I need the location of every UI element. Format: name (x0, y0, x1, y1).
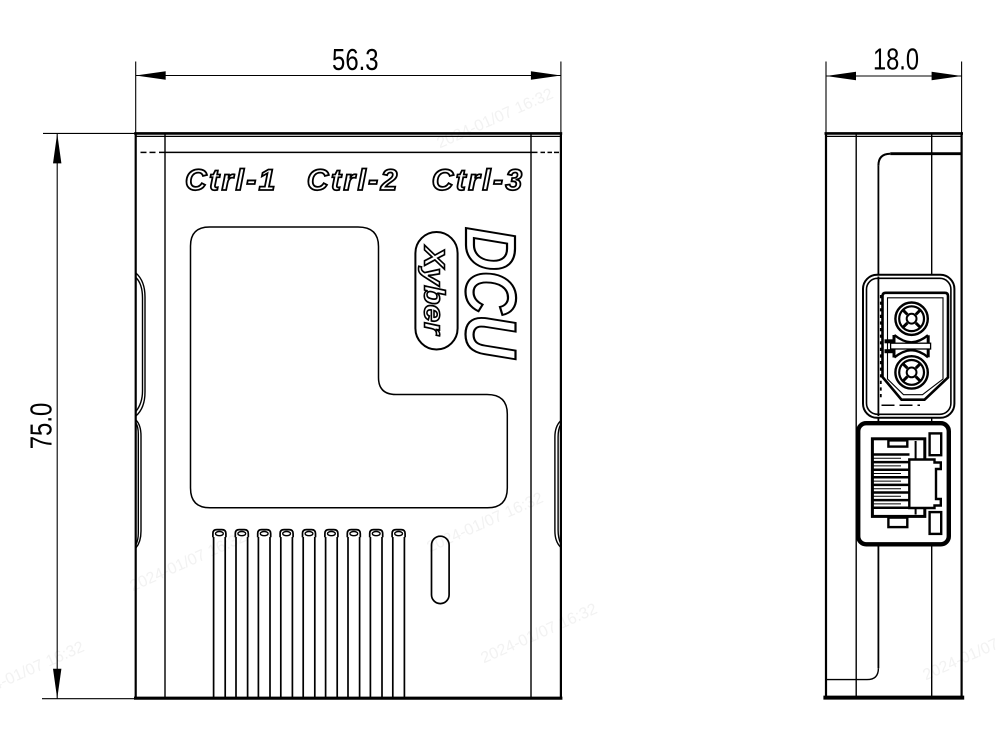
svg-text:DCU: DCU (450, 227, 529, 359)
svg-text:Ctrl-2: Ctrl-2 (307, 164, 400, 197)
svg-text:56.3: 56.3 (332, 42, 379, 77)
svg-text:Ctrl-1: Ctrl-1 (185, 164, 278, 197)
svg-text:75.0: 75.0 (24, 403, 59, 450)
svg-text:Ctrl-3: Ctrl-3 (432, 164, 525, 197)
svg-text:Xyber: Xyber (418, 244, 450, 336)
svg-text:18.0: 18.0 (873, 42, 919, 77)
